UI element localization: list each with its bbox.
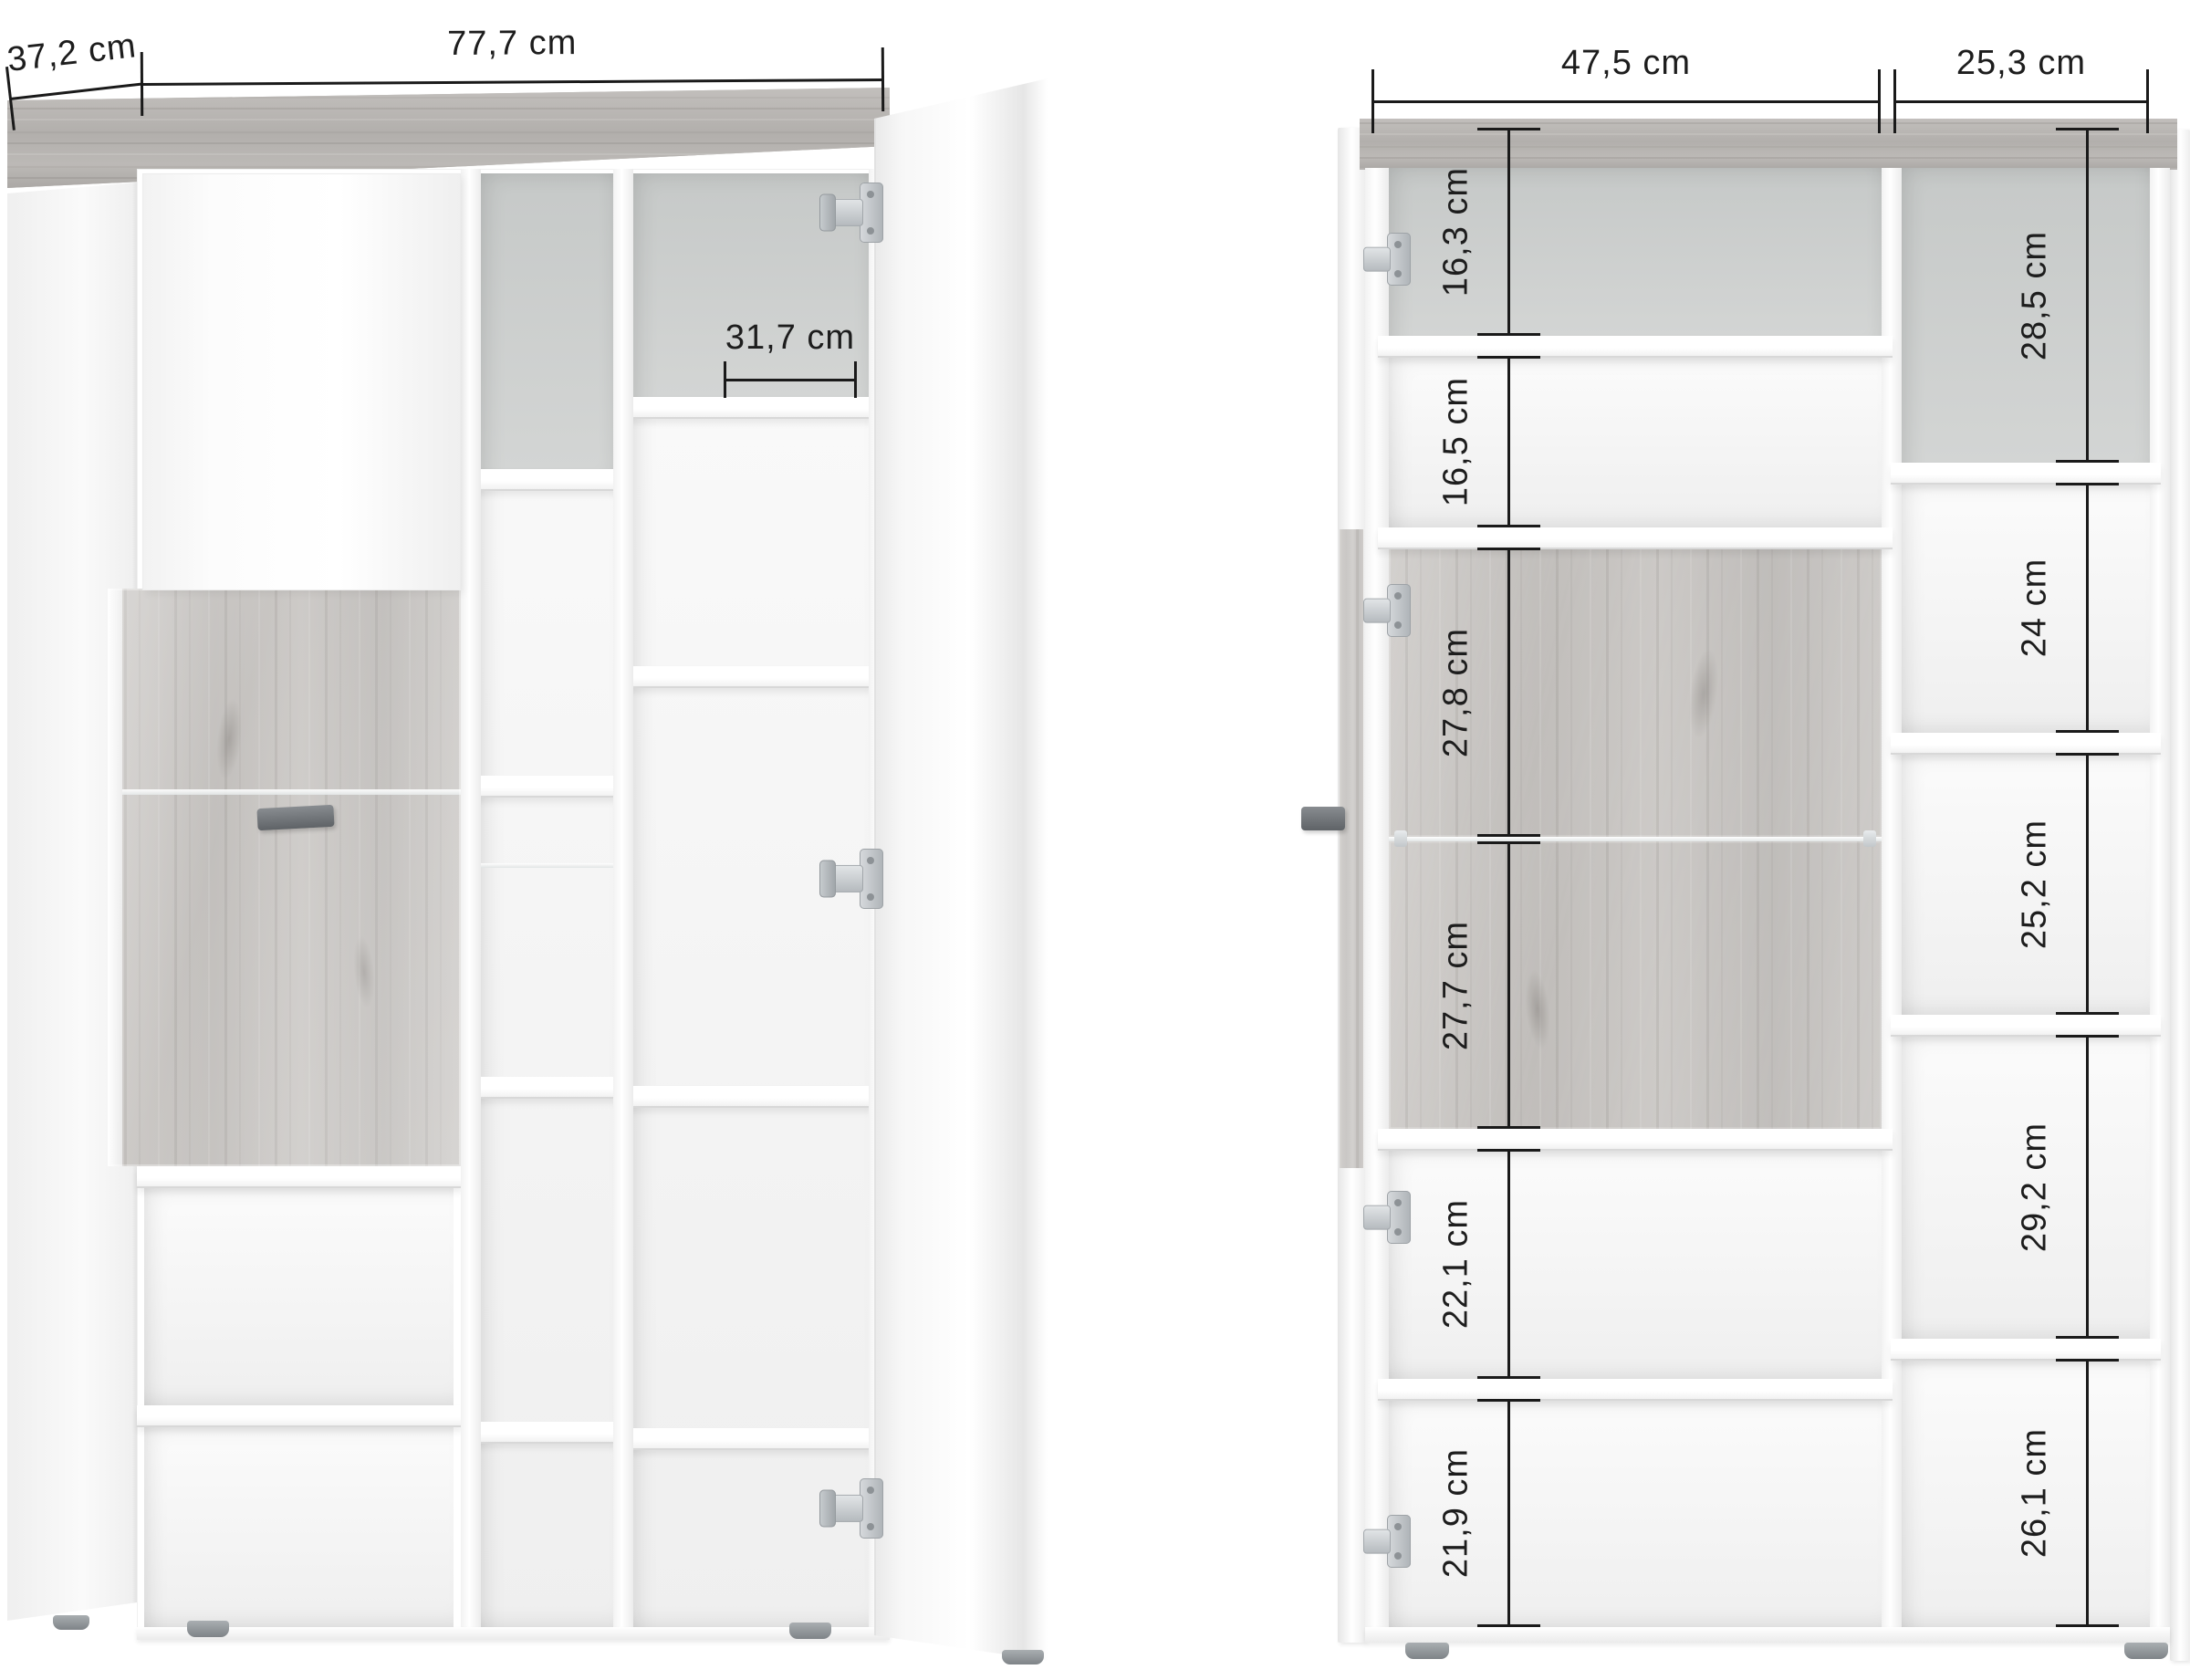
dimension-line [1507,1149,1510,1379]
dimension-tick [1477,333,1540,336]
shelf [1891,1339,2161,1361]
cell-height-label: 16,3 cm [1437,167,1476,297]
divider-wall [1882,168,1902,1627]
cell-height-dimension: 16,5 cm [1507,356,1510,527]
right-wall [2150,168,2170,1627]
dimension-tick [1477,841,1540,844]
dimension-tick [2056,483,2119,485]
dimension-tick [2056,1336,2119,1339]
dimension-line [2086,753,2089,1015]
dimension-tick [1477,1126,1540,1129]
glass-shelf-clip [1394,830,1407,847]
cell-height-dimension: 27,7 cm [1507,841,1510,1129]
hinge-icon [1363,1515,1411,1568]
dimension-line [1507,841,1510,1129]
glass-door-edge [1340,529,1363,1168]
cabinet-top-panel [1360,119,2177,170]
cell-height-label: 28,5 cm [2016,230,2055,360]
hinge-icon [1363,233,1411,286]
dimension-tick [1878,69,1881,133]
cell-height-label: 21,9 cm [1437,1448,1476,1578]
dimension-tick [2056,460,2119,463]
dimension-tick [1477,525,1540,527]
dimension-tick [2056,1035,2119,1038]
hinge-icon [1363,1191,1411,1244]
front-view: 47,5 cm 25,3 cm 16,3 cm 16,5 cm 27,8 cm … [0,0,2190,1680]
dimension-tick [2056,128,2119,130]
dimension-line [2086,128,2089,463]
dimension-line [2086,1359,2089,1627]
dimension-tick [1477,1624,1540,1627]
dimension-line [1507,1399,1510,1627]
cell-height-dimension: 21,9 cm [1507,1399,1510,1627]
dimension-tick [2146,69,2149,133]
shelf [1891,1015,2161,1037]
glass-shelf [1389,837,1882,841]
right-section-width-label: 25,3 cm [1956,44,2086,83]
shelf [1378,1129,1893,1151]
cell-height-label: 26,1 cm [2016,1428,2055,1558]
left-section-width-label: 47,5 cm [1561,44,1691,83]
cell-height-dimension: 27,8 cm [1507,548,1510,837]
dimension-tick [2056,730,2119,733]
dimension-line [1894,100,2148,103]
foot-icon [2124,1643,2168,1659]
glass-shelf-clip [1863,830,1876,847]
door-handle [1301,807,1345,830]
furniture-dimension-diagram: 37,2 cm 77,7 cm 31,7 cm [0,0,2190,1680]
cell-height-dimension: 28,5 cm [2086,128,2089,463]
cell-height-dimension: 24 cm [2086,483,2089,733]
shelf [1891,463,2161,485]
dimension-line [1507,128,1510,336]
cell-height-label: 29,2 cm [2016,1122,2055,1251]
right-section-width-dimension: 25,3 cm [1894,100,2148,103]
cell-height-dimension: 22,1 cm [1507,1149,1510,1379]
dimension-line [1372,100,1880,103]
shelf [1378,336,1893,358]
dimension-tick [1477,1149,1540,1152]
cell-height-dimension: 26,1 cm [2086,1359,2089,1627]
dimension-line [1507,356,1510,527]
cell-height-dimension: 29,2 cm [2086,1035,2089,1339]
hinge-icon [1363,584,1411,637]
dimension-tick [2056,1012,2119,1015]
dimension-line [1507,548,1510,837]
dimension-tick [2056,1624,2119,1627]
shelf [1378,1379,1893,1401]
cell-height-label: 25,2 cm [2016,819,2055,948]
cell-height-label: 24 cm [2016,558,2055,657]
dimension-tick [2056,753,2119,756]
cell-height-dimension: 25,2 cm [2086,753,2089,1015]
cell-height-label: 22,1 cm [1437,1199,1476,1329]
cell-height-dimension: 16,3 cm [1507,128,1510,336]
dimension-tick [1477,356,1540,359]
dimension-tick [1477,548,1540,550]
right-door-edge [2170,130,2190,1661]
dimension-tick [1477,1399,1540,1402]
dimension-line [2086,483,2089,733]
cell-height-label: 27,8 cm [1437,627,1476,757]
dimension-tick [2056,1359,2119,1362]
left-wall [1365,168,1389,1627]
left-section-width-dimension: 47,5 cm [1372,100,1880,103]
dimension-tick [1477,128,1540,130]
cell-height-label: 27,7 cm [1437,920,1476,1049]
shelf [1891,733,2161,755]
cell-height-label: 16,5 cm [1437,377,1476,506]
dimension-tick [1477,1376,1540,1379]
shelf [1378,527,1893,549]
left-door-edge [1338,128,1365,1643]
dimension-tick [1477,834,1540,837]
bottom-panel [1365,1627,2170,1643]
dimension-line [2086,1035,2089,1339]
foot-icon [1405,1643,1449,1659]
